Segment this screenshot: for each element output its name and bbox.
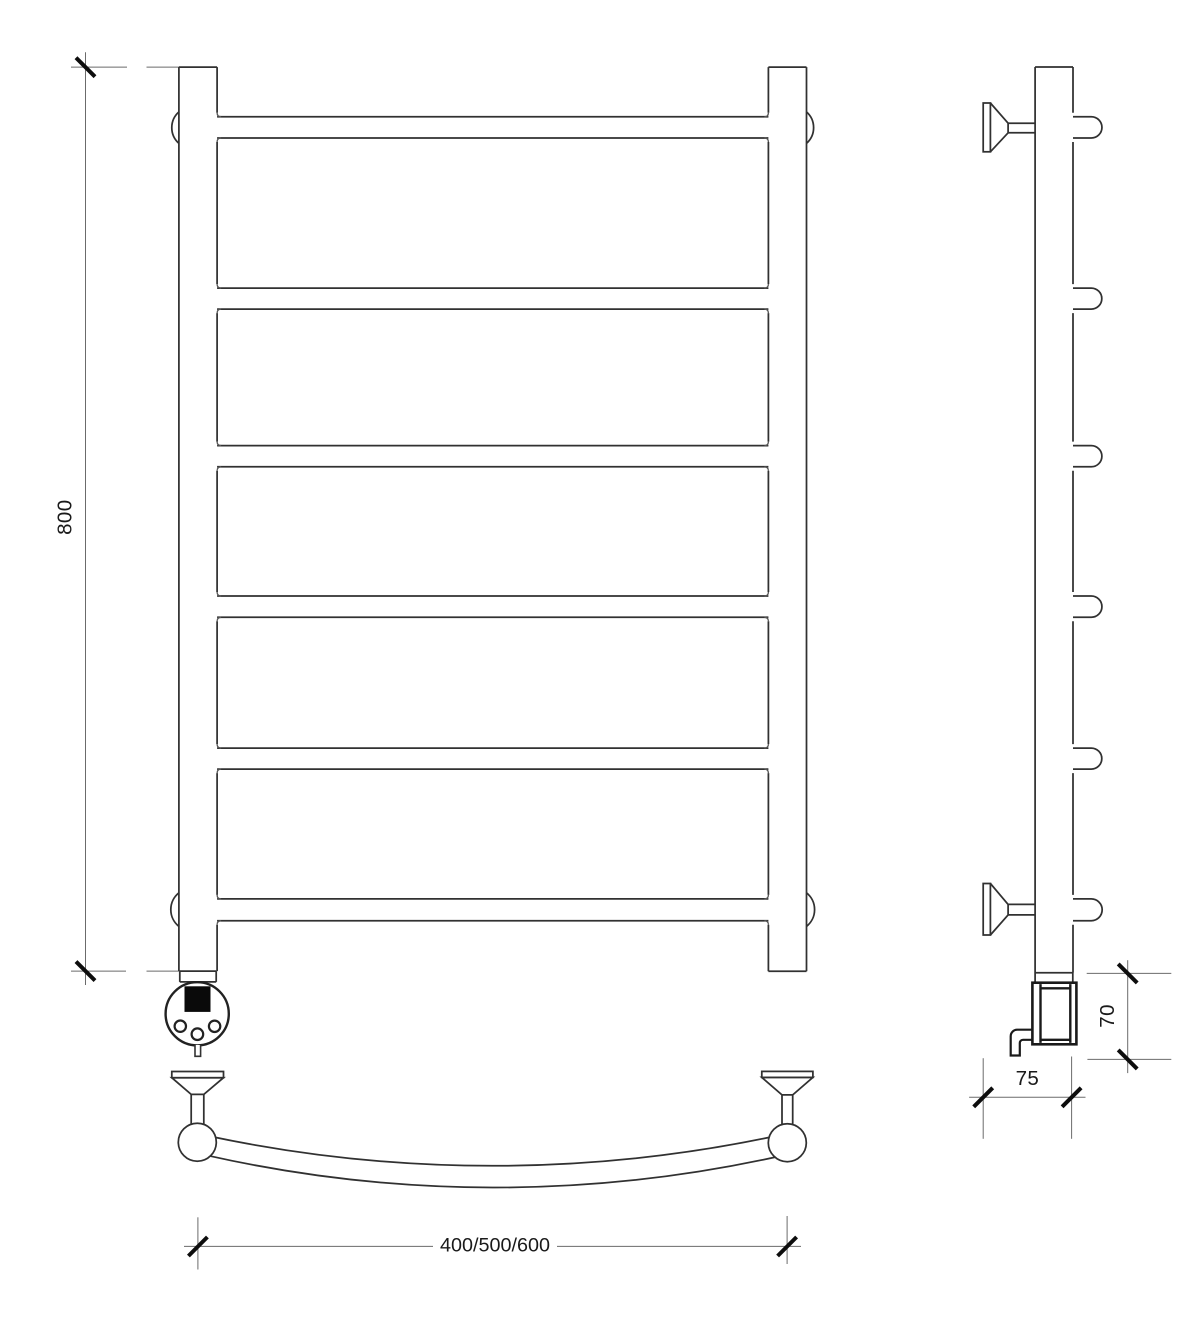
svg-text:800: 800 xyxy=(53,499,76,534)
svg-text:400/500/600: 400/500/600 xyxy=(440,1235,550,1257)
svg-text:75: 75 xyxy=(1016,1067,1040,1090)
svg-text:70: 70 xyxy=(1096,1004,1119,1028)
